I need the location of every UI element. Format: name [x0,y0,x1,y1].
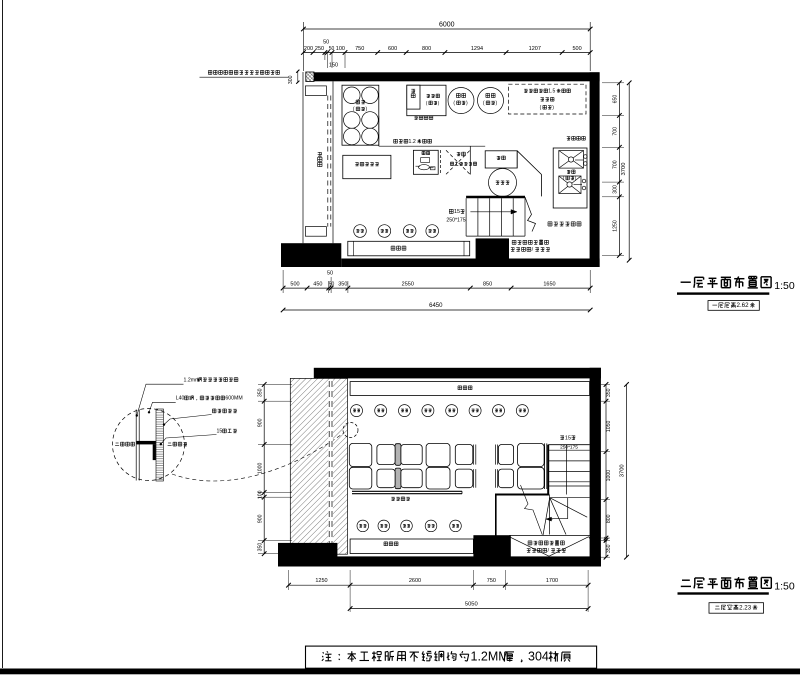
svg-text:1.2: 1.2 [409,139,416,145]
svg-text:250*175: 250*175 [560,444,578,450]
svg-text:450: 450 [313,282,322,288]
svg-text:1250: 1250 [613,220,619,232]
svg-text:50: 50 [329,282,335,288]
svg-text:1.2MM: 1.2MM [471,650,509,664]
svg-text:1000: 1000 [606,470,612,482]
svg-text:250*175: 250*175 [446,217,465,223]
svg-text:2550: 2550 [402,282,414,288]
svg-text:700: 700 [613,160,619,169]
svg-text:2.23: 2.23 [739,604,752,611]
svg-text:1294: 1294 [471,46,483,52]
svg-text:350: 350 [606,544,612,553]
svg-text:700: 700 [613,127,619,136]
svg-text:750: 750 [355,46,364,52]
svg-text:100: 100 [257,490,263,499]
svg-text:900: 900 [257,418,263,427]
svg-text:1650: 1650 [543,282,555,288]
svg-text:800: 800 [422,46,431,52]
svg-text:600: 600 [388,46,397,52]
svg-text:100: 100 [336,46,345,52]
svg-text:6000: 6000 [439,22,455,29]
svg-text:350: 350 [338,282,347,288]
svg-text:600MM: 600MM [225,396,242,402]
svg-text:2600: 2600 [409,578,421,584]
svg-text:304: 304 [528,650,549,664]
svg-text:1050: 1050 [606,421,612,433]
svg-text:300: 300 [288,75,294,84]
svg-text:50: 50 [329,46,335,52]
svg-text:350: 350 [257,388,263,397]
svg-text:1700: 1700 [546,578,558,584]
svg-text:2.62: 2.62 [737,302,750,309]
svg-text:5050: 5050 [465,602,478,608]
svg-text:850: 850 [483,282,492,288]
svg-text:150: 150 [329,63,338,69]
svg-text:3700: 3700 [621,163,627,176]
svg-text:500: 500 [290,282,299,288]
svg-text:650: 650 [613,95,619,104]
svg-text:1.2mm: 1.2mm [184,377,200,383]
svg-text:1250: 1250 [315,578,327,584]
svg-text:500: 500 [573,46,582,52]
svg-text:350: 350 [257,543,263,552]
svg-text:15: 15 [565,435,571,441]
svg-text:750: 750 [487,578,496,584]
svg-text:50: 50 [603,536,609,542]
svg-text:3700: 3700 [620,464,626,477]
svg-text:1000: 1000 [257,463,263,475]
svg-text:200: 200 [304,46,313,52]
svg-text:15: 15 [454,209,460,215]
svg-text:1207: 1207 [529,46,541,52]
svg-text:L40: L40 [176,396,185,402]
svg-text:1:50: 1:50 [774,280,795,292]
svg-text:900: 900 [257,514,263,523]
svg-text:50: 50 [323,40,329,46]
svg-text:1:50: 1:50 [774,581,795,593]
svg-text:300: 300 [613,185,619,194]
svg-text:800: 800 [606,514,612,523]
svg-text:350: 350 [606,388,612,397]
svg-text:15: 15 [217,429,223,435]
svg-text:50: 50 [327,271,333,277]
svg-text:6450: 6450 [429,303,443,309]
svg-text:250: 250 [315,46,324,52]
svg-text:1.5: 1.5 [548,88,555,94]
